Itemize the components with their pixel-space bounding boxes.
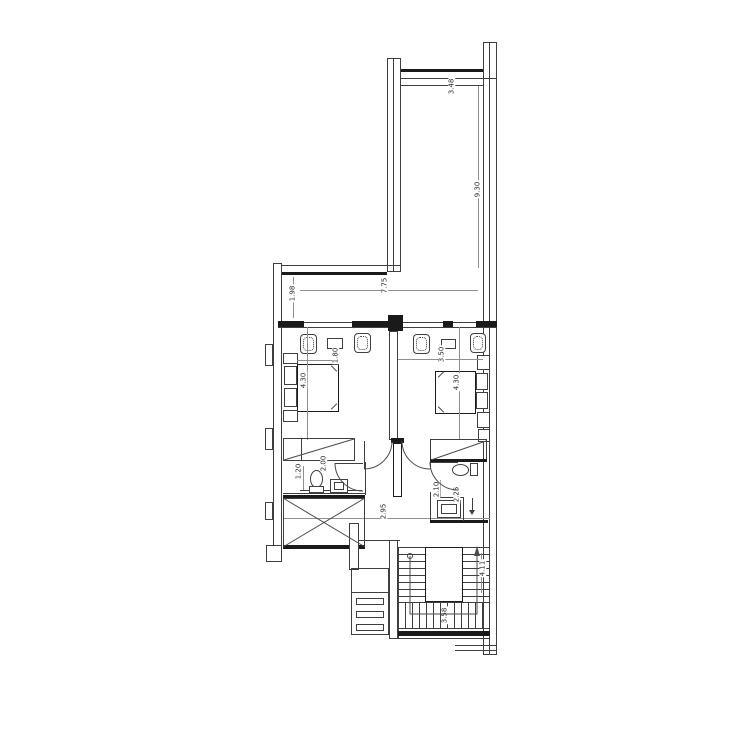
- stair-walk-arrowhead: [474, 546, 480, 556]
- stair-walk-line: [410, 549, 477, 614]
- plan-curves: [0, 0, 745, 729]
- door-arc-bedroom-left: [364, 441, 392, 469]
- door-arc-bath-left: [335, 463, 363, 491]
- door-arc-bedroom-right: [402, 441, 430, 469]
- wardrobe-left-rail: [284, 439, 354, 460]
- floor-plan: 3.48 9.30 1.98 7.75 1.80 4.30: [0, 0, 745, 729]
- door-arc-bath-right: [430, 462, 458, 490]
- wardrobe-right-rail: [431, 441, 486, 460]
